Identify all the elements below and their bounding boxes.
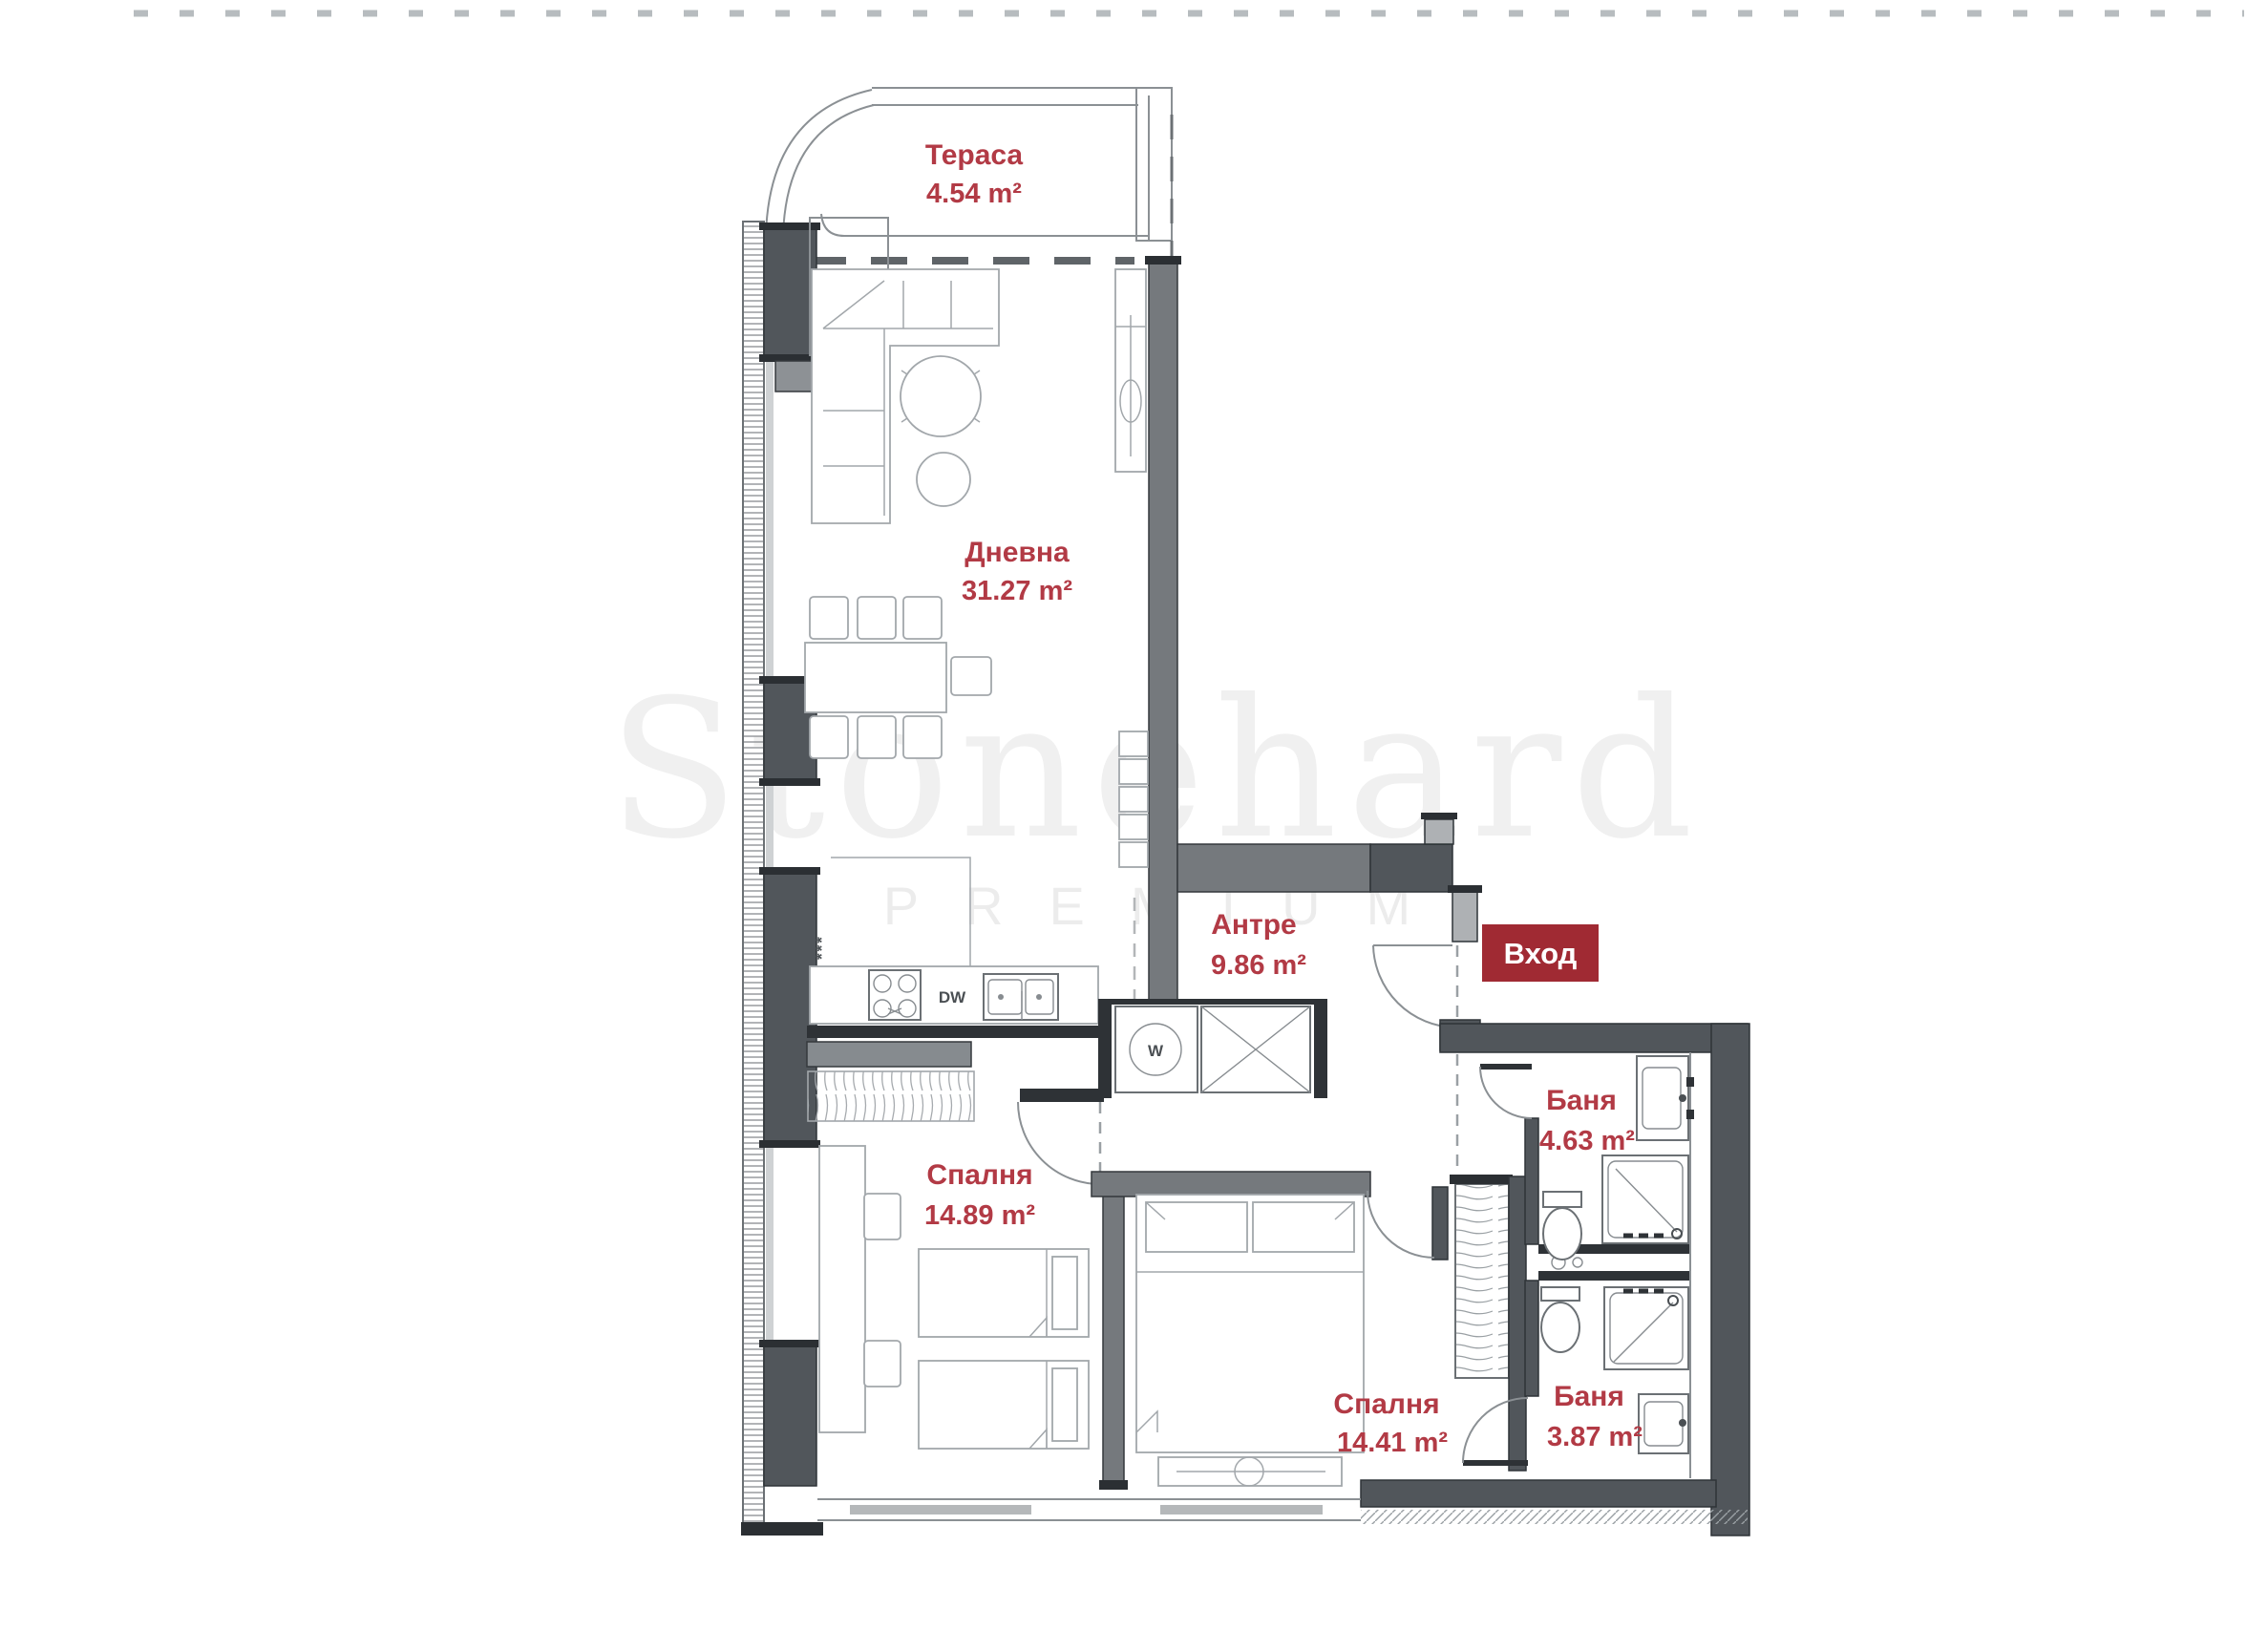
- entrance-badge: Вход: [1482, 924, 1599, 982]
- bathroom2-area-label: 3.87 m²: [1547, 1422, 1643, 1452]
- coffee-table: [901, 356, 981, 506]
- shower: [1604, 1287, 1688, 1369]
- dishwasher-label: DW: [939, 988, 966, 1006]
- wall-stub: [775, 361, 816, 392]
- bathroom1-door-arc: [1480, 1067, 1532, 1118]
- room-bedroom-2: Спалня 14.41 m²: [1092, 1172, 1513, 1490]
- wall-pier: [764, 1345, 816, 1486]
- washbasin: [1637, 1056, 1694, 1140]
- washbasin: [1639, 1394, 1688, 1453]
- kitchen-wall: [807, 1026, 1100, 1038]
- wall-stub: [1020, 1089, 1104, 1102]
- wall-pier: [764, 229, 816, 360]
- bedroom1-name-label: Спалня: [926, 1159, 1032, 1191]
- window-sill: [850, 1505, 1031, 1514]
- hall-name-label: Антре: [1211, 909, 1297, 941]
- hall-area-label: 9.86 m²: [1211, 950, 1306, 981]
- floor-plan-page: Stonehard PREMIUM Тераса 4.54 m²: [0, 0, 2268, 1631]
- hall-closet: W: [1098, 999, 1327, 1098]
- bedroom2-area-label: 14.41 m²: [1337, 1428, 1448, 1458]
- terrace-area-label: 4.54 m²: [926, 179, 1022, 209]
- bathroom2-name-label: Баня: [1554, 1381, 1624, 1412]
- living-name-label: Дневна: [964, 537, 1070, 568]
- toilet: [1541, 1287, 1579, 1352]
- desk: [819, 1146, 901, 1432]
- bedroom2-name-label: Спалня: [1333, 1388, 1439, 1420]
- shelf-column: [1119, 731, 1148, 867]
- right-outer-wall: [1711, 1024, 1749, 1536]
- bedroom-bench: [1158, 1457, 1342, 1486]
- wardrobe-hangers: [808, 1071, 974, 1121]
- terrace-name-label: Тераса: [925, 139, 1024, 171]
- room-bedroom-1: Спалня 14.89 m²: [808, 1071, 1104, 1449]
- bedroom-partition-wall: [1103, 1190, 1124, 1488]
- bathroom1-name-label: Баня: [1546, 1085, 1617, 1116]
- entrance-door-arc: [1373, 945, 1455, 1027]
- single-bed: [919, 1249, 1089, 1337]
- toilet: [1543, 1192, 1581, 1260]
- living-area-label: 31.27 m²: [962, 576, 1072, 606]
- bathroom-left-wall: [1509, 1176, 1526, 1471]
- tv-cabinet: [1115, 269, 1146, 472]
- hall-top-wall: [1177, 844, 1370, 892]
- stove: [869, 970, 921, 1020]
- bedroom2-top-wall: [1092, 1172, 1370, 1197]
- living-hall-wall: [1149, 263, 1177, 1003]
- window-sill: [1160, 1505, 1323, 1514]
- bottom-walls: [817, 1480, 1748, 1524]
- room-terrace: Тераса 4.54 m²: [766, 88, 1172, 261]
- shower: [1602, 1155, 1688, 1243]
- bottom-exterior-wall: [1361, 1480, 1716, 1507]
- kitchen-sink: [984, 974, 1058, 1020]
- door-jamb: [1432, 1187, 1448, 1260]
- bedroom1-area-label: 14.89 m²: [924, 1200, 1035, 1231]
- door-jamb: [1452, 892, 1477, 942]
- bathroom-top-wall: [1440, 1024, 1748, 1052]
- double-bed: [1136, 1195, 1364, 1452]
- linen-closet: [1450, 1175, 1513, 1378]
- wall-hatch: [1361, 1510, 1748, 1524]
- bathroom1-area-label: 4.63 m²: [1539, 1126, 1635, 1156]
- vent-marks: ***: [813, 935, 831, 960]
- entrance-badge-label: Вход: [1504, 937, 1578, 970]
- low-wall: [807, 1042, 971, 1067]
- single-bed: [919, 1361, 1089, 1449]
- bedroom2-door-arc: [1367, 1191, 1434, 1258]
- washer-label: W: [1148, 1042, 1164, 1060]
